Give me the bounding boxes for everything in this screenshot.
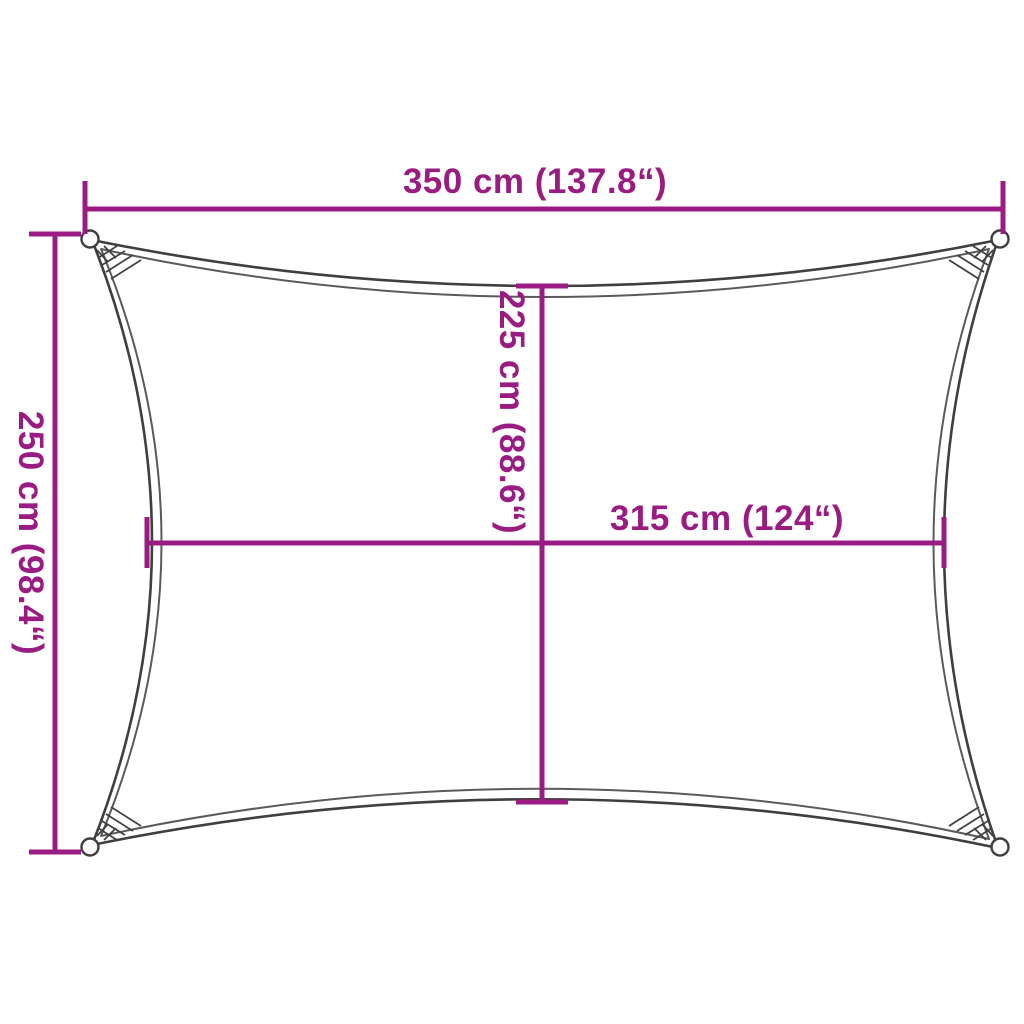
dimension-label-top-width: 350 cm (137.8“): [403, 162, 667, 202]
dimension-label-left-height: 250 cm (98.4“): [10, 411, 50, 655]
dimension-label-center-height: 225 cm (88.6“): [491, 290, 531, 534]
dimension-label-center-width: 315 cm (124“): [610, 499, 844, 539]
dimension-diagram: 350 cm (137.8“) 250 cm (98.4“) 225 cm (8…: [0, 0, 1024, 1024]
